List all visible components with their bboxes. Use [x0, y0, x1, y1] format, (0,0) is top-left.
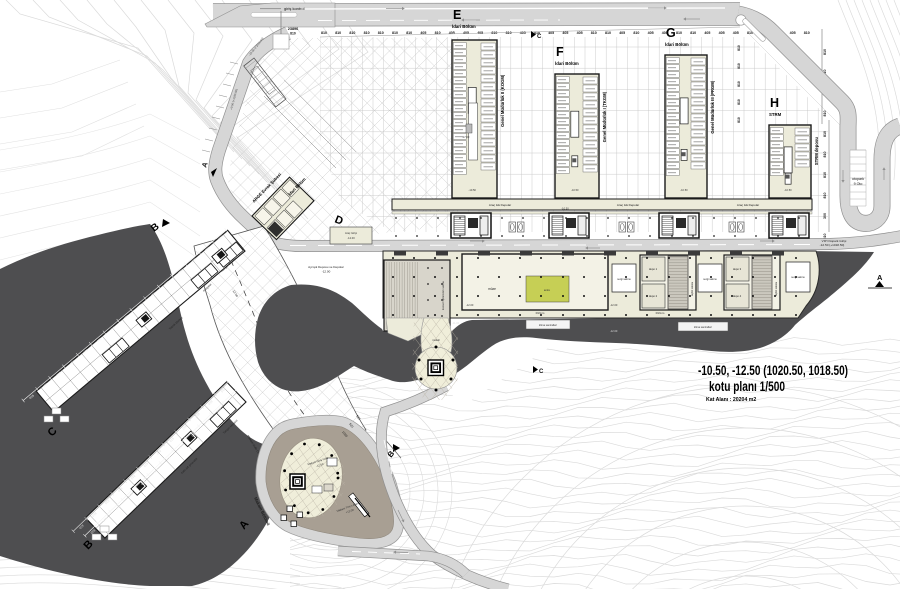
svg-text:810: 810	[364, 31, 370, 35]
svg-text:300: 300	[823, 213, 827, 219]
svg-text:Genel Müdürlük III (PRGM): Genel Müdürlük III (PRGM)	[710, 80, 715, 133]
svg-text:810: 810	[335, 31, 341, 35]
svg-text:23896: 23896	[288, 27, 299, 31]
svg-text:405: 405	[648, 31, 654, 35]
svg-text:810: 810	[737, 45, 741, 51]
svg-text:810: 810	[349, 31, 355, 35]
svg-text:810: 810	[737, 63, 741, 69]
svg-text:-10.50: -10.50	[784, 188, 792, 192]
svg-text:klima santralleri: klima santralleri	[539, 323, 557, 327]
svg-text:810: 810	[676, 31, 682, 35]
svg-text:405: 405	[719, 31, 725, 35]
svg-text:sergi salonu: sergi salonu	[703, 278, 717, 281]
svg-text:E: E	[453, 8, 461, 22]
svg-text:-12.00: -12.00	[347, 236, 355, 240]
svg-text:İdari Bölüm: İdari Bölüm	[452, 24, 476, 29]
svg-text:9 Oto: 9 Oto	[854, 182, 863, 186]
svg-text:G: G	[666, 26, 676, 40]
svg-text:Genel Müdürlük II (KOGM): Genel Müdürlük II (KOGM)	[500, 74, 505, 127]
svg-text:810: 810	[823, 152, 827, 158]
svg-text:-10.50: -10.50	[469, 188, 477, 192]
svg-text:otopark: otopark	[852, 177, 864, 181]
svg-text:810: 810	[823, 111, 827, 117]
svg-text:405: 405	[520, 31, 526, 35]
svg-text:810: 810	[737, 117, 741, 123]
svg-text:Genel Müdürlük I (TKGM): Genel Müdürlük I (TKGM)	[602, 91, 607, 142]
svg-text:810: 810	[633, 31, 639, 35]
svg-text:-10.50: -10.50	[561, 207, 569, 211]
svg-text:-17.00: -17.00	[462, 135, 470, 139]
svg-text:müdafi: müdafi	[432, 339, 440, 342]
svg-text:C: C	[537, 34, 542, 40]
svg-text:810: 810	[690, 31, 696, 35]
svg-text:810: 810	[823, 49, 827, 55]
svg-text:-10.50: -10.50	[571, 188, 579, 192]
svg-text:sergi salonu: sergi salonu	[791, 276, 805, 279]
svg-text:Araç && Depolar: Araç && Depolar	[489, 203, 511, 207]
svg-text:kotu planı 1/500: kotu planı 1/500	[709, 379, 785, 394]
svg-text:C: C	[539, 369, 544, 375]
svg-text:müze: müze	[488, 287, 496, 291]
svg-text:depo 2: depo 2	[649, 294, 658, 298]
svg-text:405: 405	[449, 31, 455, 35]
svg-text:Araç Girişi: Araç Girişi	[345, 231, 357, 235]
svg-text:A: A	[877, 273, 883, 282]
svg-text:810: 810	[823, 193, 827, 199]
svg-text:810: 810	[321, 31, 327, 35]
svg-text:depo 3: depo 3	[733, 267, 742, 271]
svg-text:405: 405	[619, 31, 625, 35]
svg-text:405: 405	[577, 31, 583, 35]
svg-text:Araç && Depolar: Araç && Depolar	[617, 203, 639, 207]
svg-text:Araç && Depolar: Araç && Depolar	[737, 203, 759, 207]
svg-text:810: 810	[804, 31, 810, 35]
svg-text:antre: antre	[544, 288, 551, 292]
svg-text:Kat Alanı : 20204 m2: Kat Alanı : 20204 m2	[706, 397, 756, 403]
svg-text:giriş kontrol: giriş kontrol	[284, 6, 305, 11]
svg-text:H: H	[770, 96, 779, 110]
svg-text:-12.00: -12.00	[610, 303, 618, 307]
svg-text:810: 810	[605, 31, 611, 35]
svg-text:İdari Bölüm: İdari Bölüm	[555, 61, 579, 66]
svg-text:810: 810	[823, 131, 827, 137]
svg-text:-12.50 (+1018.50): -12.50 (+1018.50)	[820, 243, 845, 247]
svg-text:810: 810	[823, 172, 827, 178]
svg-text:810: 810	[392, 31, 398, 35]
svg-text:teşhir salonu: teşhir salonu	[691, 281, 694, 296]
svg-text:810: 810	[290, 32, 296, 36]
svg-text:405: 405	[463, 31, 469, 35]
svg-text:Rıhtım: Rıhtım	[656, 311, 665, 315]
svg-text:depo 1: depo 1	[649, 267, 658, 271]
svg-text:405: 405	[790, 31, 796, 35]
svg-text:STRM: STRM	[769, 112, 782, 117]
svg-text:-11.00: -11.00	[452, 321, 460, 325]
svg-text:F: F	[556, 45, 564, 59]
svg-text:810: 810	[506, 31, 512, 35]
svg-text:-10.50, -12.50 (1020.50, 1018.: -10.50, -12.50 (1020.50, 1018.50)	[698, 363, 848, 378]
svg-text:810: 810	[406, 31, 412, 35]
svg-text:810: 810	[378, 31, 384, 35]
svg-text:-10.50: -10.50	[680, 188, 688, 192]
svg-text:-12.00: -12.00	[322, 270, 331, 274]
svg-text:klima santralleri: klima santralleri	[694, 325, 712, 329]
svg-text:STRM deposu: STRM deposu	[814, 137, 819, 165]
svg-text:810: 810	[737, 99, 741, 105]
svg-text:-12.00: -12.00	[466, 303, 474, 307]
svg-text:405: 405	[704, 31, 710, 35]
svg-text:405: 405	[562, 31, 568, 35]
svg-text:sergi salonu: sergi salonu	[617, 278, 631, 281]
svg-text:405: 405	[733, 31, 739, 35]
svg-text:-12.00: -12.00	[610, 329, 618, 333]
svg-text:konser toplantıları salonu: konser toplantıları salonu	[441, 280, 445, 310]
svg-text:810: 810	[737, 81, 741, 87]
svg-text:Ayrışık Deposu ve Depolar: Ayrışık Deposu ve Depolar	[308, 265, 344, 269]
svg-text:teşhir salonu: teşhir salonu	[775, 281, 778, 296]
svg-text:810: 810	[591, 31, 597, 35]
svg-text:İdari Bölüm: İdari Bölüm	[665, 42, 689, 47]
svg-text:depo 4: depo 4	[733, 294, 742, 298]
